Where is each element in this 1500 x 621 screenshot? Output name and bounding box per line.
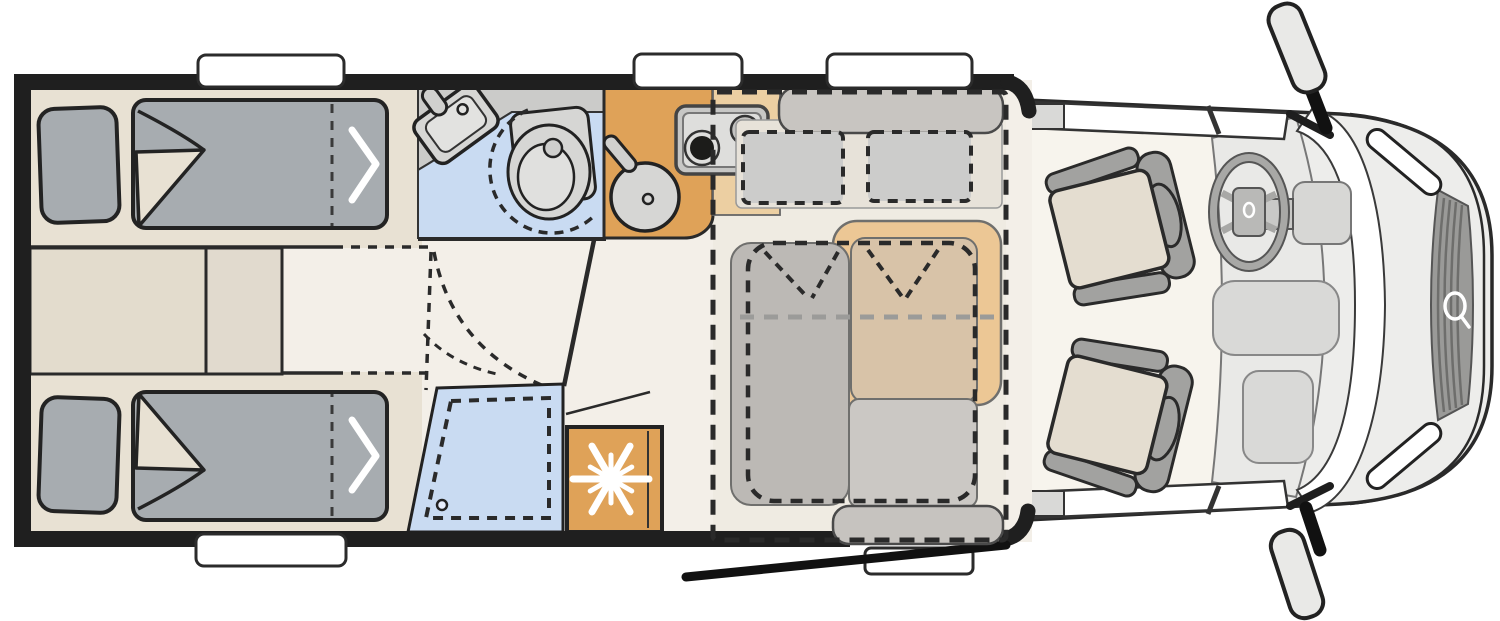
between-bed-cabinet bbox=[30, 248, 206, 374]
glovebox bbox=[1243, 371, 1313, 463]
wall-rear bbox=[14, 74, 31, 547]
refrigerator bbox=[567, 427, 662, 532]
burner-dark bbox=[690, 136, 714, 160]
motorhome-floorplan bbox=[0, 0, 1500, 621]
single-bed-top bbox=[30, 86, 430, 248]
side-bench-cushion bbox=[851, 238, 977, 402]
floorplan-canvas bbox=[0, 0, 1500, 621]
single-bed-bottom bbox=[30, 372, 430, 534]
seat-base bbox=[849, 399, 977, 507]
lounge bbox=[731, 87, 1003, 507]
shower-drain bbox=[437, 500, 447, 510]
between-bed-step bbox=[206, 248, 282, 374]
headrest-left-dashed bbox=[743, 132, 843, 203]
window-top-2 bbox=[634, 54, 742, 88]
window-top-1 bbox=[198, 55, 344, 87]
steering-hub bbox=[1233, 188, 1265, 236]
center-console bbox=[1213, 281, 1339, 355]
headrest-right-dashed bbox=[868, 132, 971, 201]
window-top-3 bbox=[827, 54, 972, 88]
kitchen-sink bbox=[611, 163, 679, 231]
instrument-binnacle bbox=[1293, 182, 1351, 244]
cab-section bbox=[1026, 0, 1492, 621]
mirror-bottom bbox=[1267, 508, 1327, 621]
window-bottom-1 bbox=[196, 534, 346, 566]
mirror-top bbox=[1264, 0, 1330, 128]
habitation-section bbox=[20, 64, 1032, 542]
